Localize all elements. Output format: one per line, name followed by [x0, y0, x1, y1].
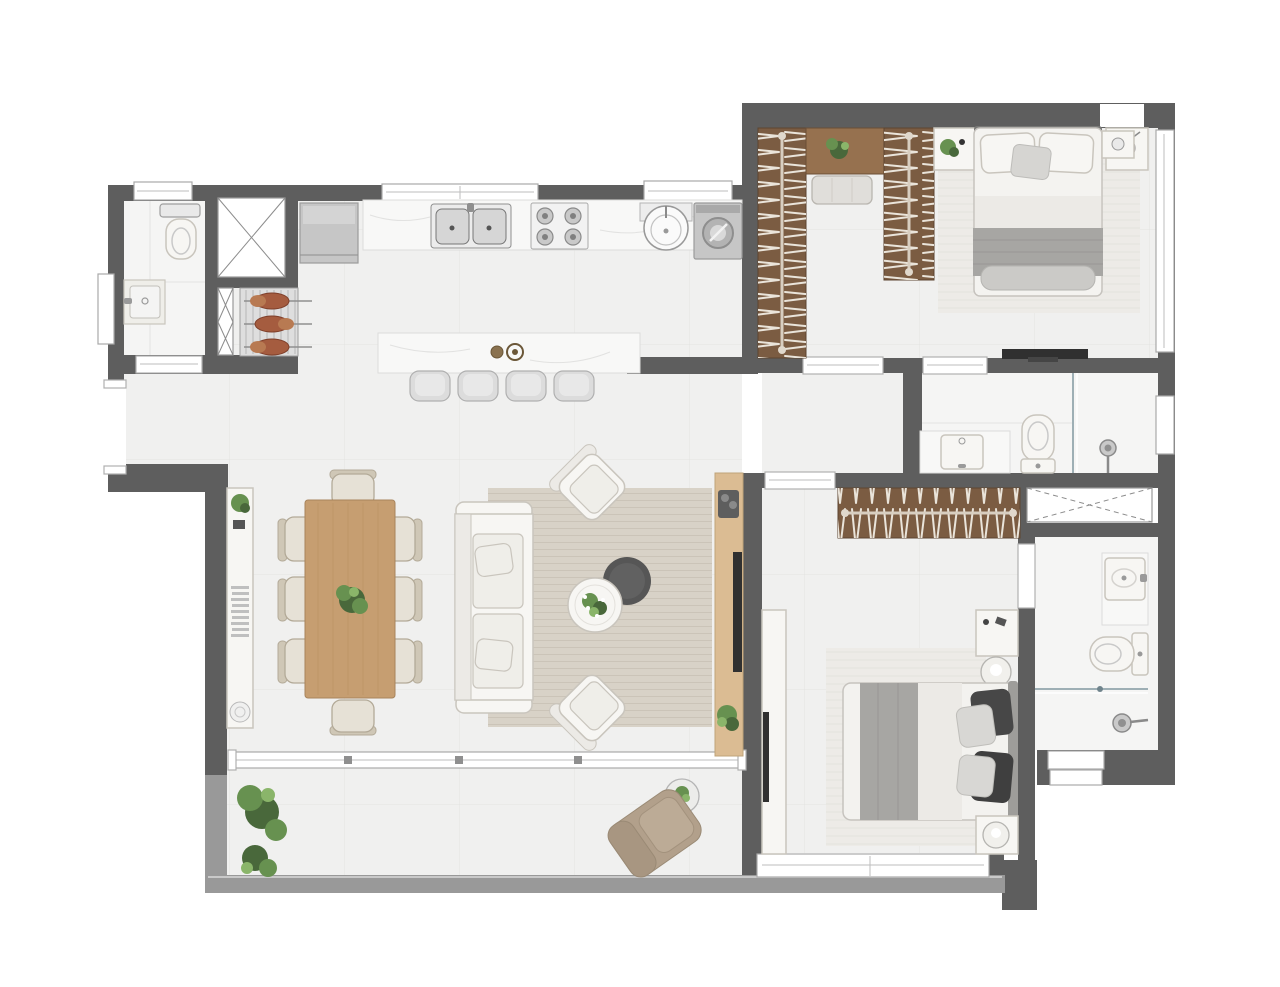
- coffee-table: [568, 578, 622, 632]
- bathroom1-door: [923, 357, 987, 374]
- wardrobe-bridge: [806, 128, 884, 174]
- bed: [843, 681, 1018, 822]
- bedroom2-door: [765, 472, 835, 489]
- window-bedroom2: [757, 854, 989, 877]
- corner-fixture: [1102, 131, 1134, 158]
- floor-plan-page: [0, 0, 1280, 987]
- balcony-sliding-door: [228, 750, 746, 770]
- floor-plan-drawing: [0, 0, 1280, 987]
- nightstand-left: [934, 128, 976, 170]
- window-service-bath: [134, 182, 192, 200]
- tv: [733, 552, 742, 672]
- tv-panel: [715, 473, 743, 756]
- elevator-shaft: [218, 198, 285, 277]
- bathroom-shaft: [1027, 488, 1152, 522]
- bench: [812, 176, 872, 204]
- window-bathroom2: [1048, 751, 1104, 785]
- dining-table: [305, 500, 395, 698]
- bar-stool: [506, 371, 546, 401]
- window-kitchen: [382, 184, 538, 201]
- duct-strip: [218, 288, 233, 355]
- toilet: [1090, 633, 1148, 675]
- console-sideboard: [227, 488, 253, 728]
- bathroom2-door: [1018, 544, 1035, 608]
- wardrobe-column-right: [884, 128, 934, 280]
- bedroom1-door: [803, 357, 883, 374]
- dining-chair: [330, 700, 376, 735]
- wall-sink: [124, 280, 165, 324]
- service-bathroom-door: [136, 356, 202, 373]
- window-bathroom1: [1156, 396, 1174, 454]
- ac-niche: [1100, 104, 1144, 127]
- vanity: [920, 431, 1010, 473]
- window-laundry: [644, 181, 732, 201]
- island-bar: [378, 333, 640, 373]
- window-bedroom1: [1156, 130, 1174, 352]
- nightstand-bottom: [976, 816, 1018, 854]
- tv: [763, 712, 769, 802]
- bar-stool: [458, 371, 498, 401]
- soundbar: [718, 490, 739, 518]
- toilet: [1021, 415, 1055, 473]
- sofa: [455, 502, 533, 713]
- dresser-tv-cabinet: [762, 610, 786, 854]
- bar-stool: [554, 371, 594, 401]
- cooktop: [531, 203, 588, 249]
- window-left-wall: [98, 274, 114, 344]
- bar-stool: [410, 371, 450, 401]
- wardrobe-column-left: [758, 128, 806, 358]
- washing-machine: [694, 203, 742, 259]
- closet-rail: [838, 488, 1020, 538]
- vanity: [1102, 553, 1148, 625]
- double-sink: [431, 203, 511, 248]
- bed: [973, 126, 1103, 296]
- living-room: [455, 442, 743, 756]
- entrance-opening: [104, 380, 126, 474]
- refrigerator: [300, 203, 358, 263]
